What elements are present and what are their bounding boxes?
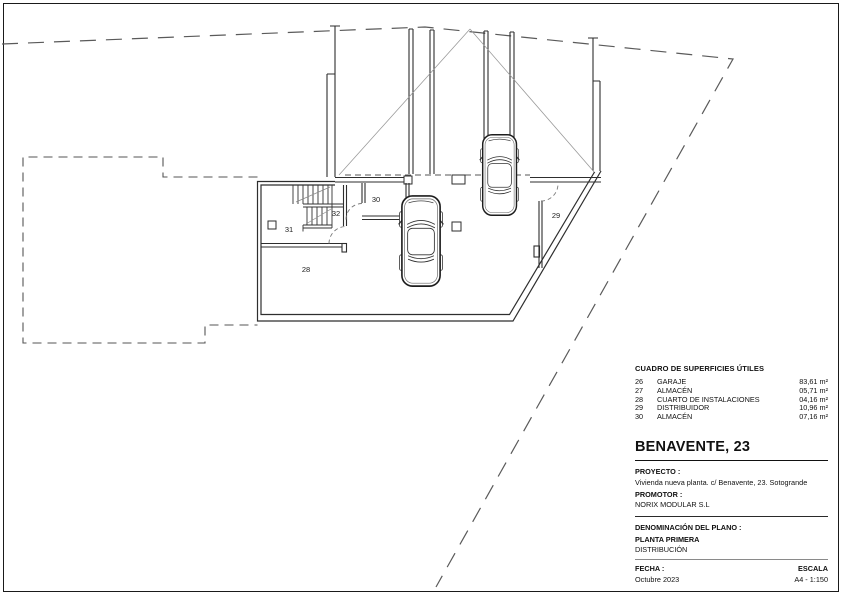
date-label: FECHA : [635,564,664,573]
row-area: 07,16 m² [799,413,828,422]
upper-floor-projection-dashed [23,157,258,343]
room-label-30: 30 [372,195,380,204]
promoter-label: PROMOTOR : [635,490,828,499]
scale-value: A4 - 1:150 [794,575,828,584]
plot-boundary-dashed-line [2,27,733,587]
car-garage [399,196,444,286]
column-garage [452,222,461,231]
plan-name-info: DENOMINACIÓN DEL PLANO : PLANTA PRIMERA … [635,523,828,560]
project-value: Vivienda nueva planta. c/ Benavente, 23.… [635,478,828,487]
car-driveway [480,135,520,216]
plan-name-line1: PLANTA PRIMERA [635,535,828,544]
project-title: BENAVENTE, 23 [635,438,828,461]
divider [635,516,828,517]
plan-name-line2: DISTRIBUCIÓN [635,545,828,554]
room-label-31: 31 [285,225,293,234]
garage-door-posts [404,175,465,184]
surface-table-title: CUADRO DE SUPERFICIES ÚTILES [635,364,828,373]
project-info: PROYECTO : Vivienda nueva planta. c/ Ben… [635,467,828,516]
column-room31 [268,221,276,229]
ramp-walls [327,26,600,177]
date-scale-values: Octubre 2023 A4 - 1:150 [635,575,828,584]
scale-label: ESCALA [798,564,828,573]
date-value: Octubre 2023 [635,575,679,584]
room-label-32: 32 [332,209,340,218]
promoter-value: NORIX MODULAR S.L [635,500,828,509]
date-scale-labels: FECHA : ESCALA [635,564,828,573]
surface-table: CUADRO DE SUPERFICIES ÚTILES 26 GARAJE 8… [635,364,828,421]
table-row: 30 ALMACÉN 07,16 m² [635,413,828,422]
drawing-sheet: 28 29 30 31 32 CUADRO DE SUPERFICIES ÚTI… [0,0,842,595]
row-num: 30 [635,413,655,422]
room-label-28: 28 [302,265,310,274]
title-block: CUADRO DE SUPERFICIES ÚTILES 26 GARAJE 8… [635,364,828,584]
plan-name-label: DENOMINACIÓN DEL PLANO : [635,523,828,532]
garage-top-wall [335,178,601,183]
row-name: ALMACÉN [657,413,797,422]
ramp-diagonal-lines [339,29,595,175]
door-swing-arcs [329,184,558,244]
divider [635,559,828,560]
project-label: PROYECTO : [635,467,828,476]
room-label-29: 29 [552,211,560,220]
